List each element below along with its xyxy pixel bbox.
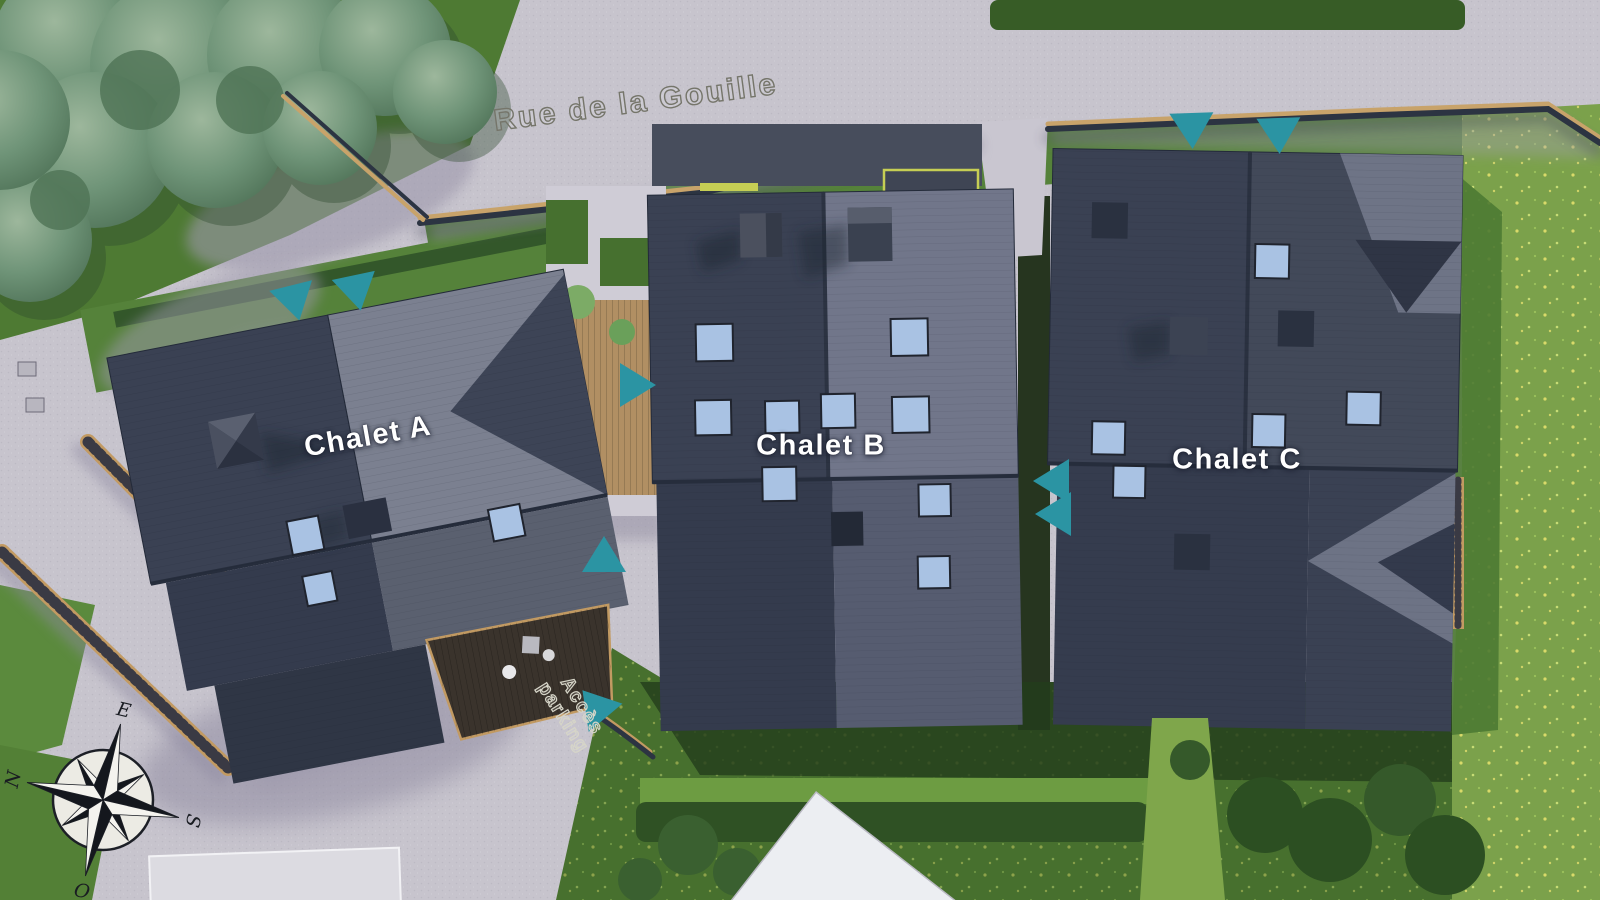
terrace-lounger [522,636,540,654]
skylight [286,516,324,555]
gate-post [18,362,36,376]
skylight [488,504,526,542]
skylight [892,396,930,433]
planter [546,200,588,264]
hedge-top-edge [990,0,1465,30]
bush [658,815,718,875]
passage-b-c [1018,196,1050,730]
skylight [302,571,337,606]
skylight [696,324,734,362]
site-plan: Rue de la Gouille Accès parking N E S O … [0,0,1600,900]
skylight [765,401,800,434]
skylight [1255,244,1290,279]
hedge-trim [700,183,758,191]
chalet-c-roof[interactable] [1043,148,1463,731]
skylight [918,556,951,589]
skylight [695,400,732,436]
skylight [891,318,929,356]
skylight [1113,466,1146,499]
tree [393,40,497,144]
white-slab-bottom-left [149,848,401,900]
shrub [609,319,635,345]
skylight [762,467,797,502]
skylight [1092,421,1126,455]
chalet-b-label[interactable]: Chalet B [756,430,886,463]
chalet-b-vent [831,512,864,547]
skylight [1346,392,1381,426]
bush [1288,798,1372,882]
skylight [821,394,856,429]
bush [1405,815,1485,895]
bush [618,858,662,900]
chalet-c-label[interactable]: Chalet C [1172,444,1302,477]
gate-post [26,398,44,412]
bush [1170,740,1210,780]
skylight [918,484,951,517]
